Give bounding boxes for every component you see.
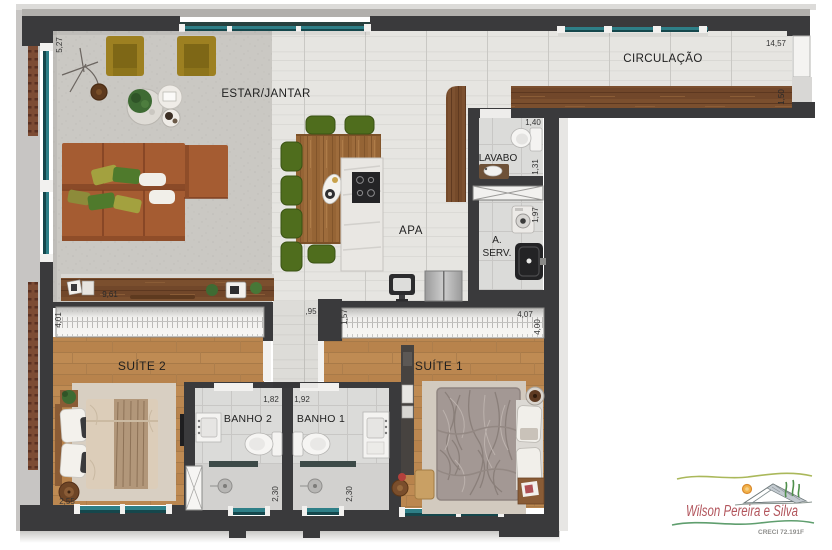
svg-text:4,00: 4,00 <box>533 319 542 335</box>
svg-text:1,31: 1,31 <box>531 159 540 175</box>
svg-text:SUÍTE 1: SUÍTE 1 <box>415 358 463 373</box>
svg-text:CIRCULAÇÃO: CIRCULAÇÃO <box>623 52 702 65</box>
svg-text:1,97: 1,97 <box>531 207 540 223</box>
svg-text:2,30: 2,30 <box>345 486 354 502</box>
svg-text:SERV.: SERV. <box>483 248 512 259</box>
svg-text:4,01: 4,01 <box>54 312 63 328</box>
svg-text:1,50: 1,50 <box>777 89 786 105</box>
svg-text:LAVABO: LAVABO <box>479 153 518 164</box>
svg-text:BANHO 1: BANHO 1 <box>297 413 345 425</box>
svg-text:4,07: 4,07 <box>517 310 533 319</box>
svg-text:2,30: 2,30 <box>271 486 280 502</box>
svg-text:1,57: 1,57 <box>340 309 349 325</box>
svg-text:9,61: 9,61 <box>102 290 118 299</box>
svg-text:1,82: 1,82 <box>263 395 279 404</box>
svg-text:A.: A. <box>492 235 501 246</box>
svg-text:,95: ,95 <box>305 307 317 316</box>
svg-text:5,27: 5,27 <box>55 37 64 53</box>
svg-text:BANHO 2: BANHO 2 <box>224 413 272 425</box>
svg-text:1,92: 1,92 <box>294 395 310 404</box>
svg-text:SUÍTE 2: SUÍTE 2 <box>118 358 166 373</box>
svg-text:CRECI 72.191F: CRECI 72.191F <box>758 529 804 536</box>
svg-text:14,57: 14,57 <box>766 39 787 48</box>
svg-text:ESTAR/JANTAR: ESTAR/JANTAR <box>221 88 310 100</box>
svg-text:Wilson Pereira e Silva: Wilson Pereira e Silva <box>686 503 798 520</box>
svg-text:APA: APA <box>399 225 423 237</box>
svg-text:2,55: 2,55 <box>59 497 75 506</box>
svg-text:1,40: 1,40 <box>525 118 541 127</box>
